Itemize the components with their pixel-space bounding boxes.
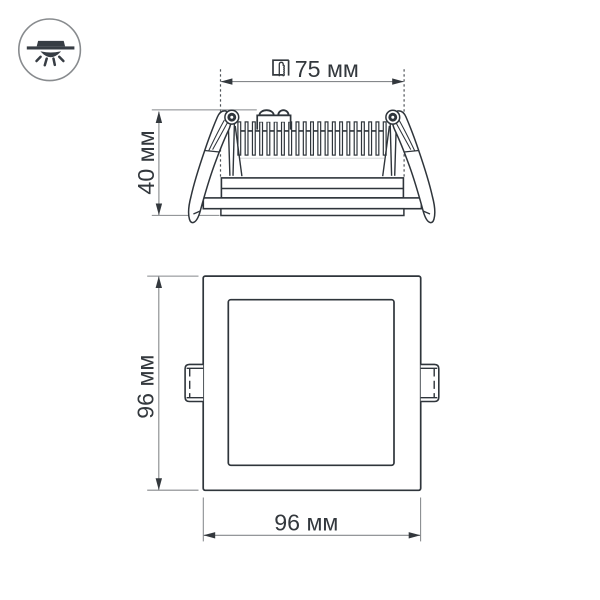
svg-text:96 мм: 96 мм — [274, 509, 338, 535]
svg-text:96 мм: 96 мм — [133, 355, 159, 419]
svg-text:40 мм: 40 мм — [133, 130, 159, 194]
svg-text:75 мм: 75 мм — [295, 56, 359, 82]
